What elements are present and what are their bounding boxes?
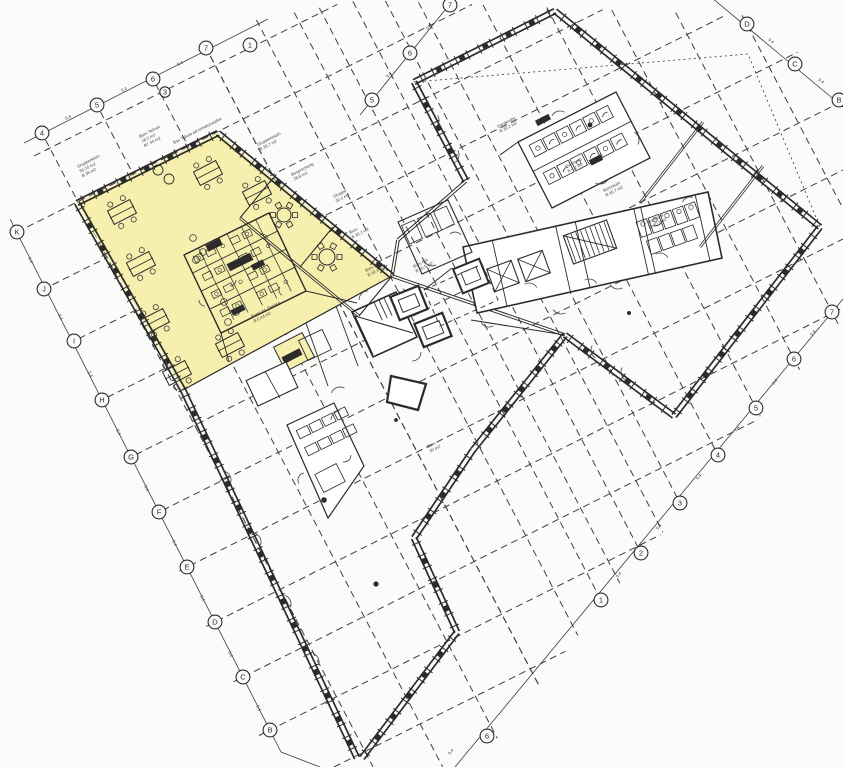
svg-text:3: 3 — [678, 499, 682, 508]
svg-text:3: 3 — [163, 88, 167, 97]
svg-text:K: K — [14, 228, 19, 237]
svg-text:6: 6 — [408, 49, 412, 58]
svg-text:C: C — [240, 673, 246, 682]
svg-text:5: 5 — [754, 404, 758, 413]
svg-text:D: D — [744, 20, 750, 29]
svg-text:1: 1 — [248, 41, 252, 50]
svg-text:E: E — [184, 563, 189, 572]
svg-text:6: 6 — [151, 75, 155, 84]
svg-text:5: 5 — [95, 101, 99, 110]
svg-text:2: 2 — [639, 549, 643, 558]
svg-text:B: B — [836, 96, 841, 105]
svg-text:6: 6 — [485, 732, 489, 741]
svg-text:7: 7 — [830, 308, 834, 317]
svg-text:4: 4 — [40, 129, 44, 138]
svg-text:D: D — [212, 618, 218, 627]
svg-text:J: J — [42, 285, 46, 294]
svg-text:5: 5 — [370, 96, 374, 105]
svg-text:G: G — [128, 453, 134, 462]
svg-text:4: 4 — [716, 451, 720, 460]
svg-text:I: I — [73, 337, 75, 346]
svg-text:7: 7 — [448, 1, 452, 10]
svg-text:1: 1 — [599, 596, 603, 605]
svg-text:6: 6 — [792, 355, 796, 364]
svg-text:7: 7 — [204, 44, 208, 53]
svg-text:H: H — [99, 396, 104, 405]
svg-text:F: F — [157, 508, 162, 517]
svg-text:C: C — [792, 60, 798, 69]
svg-text:B: B — [267, 726, 272, 735]
